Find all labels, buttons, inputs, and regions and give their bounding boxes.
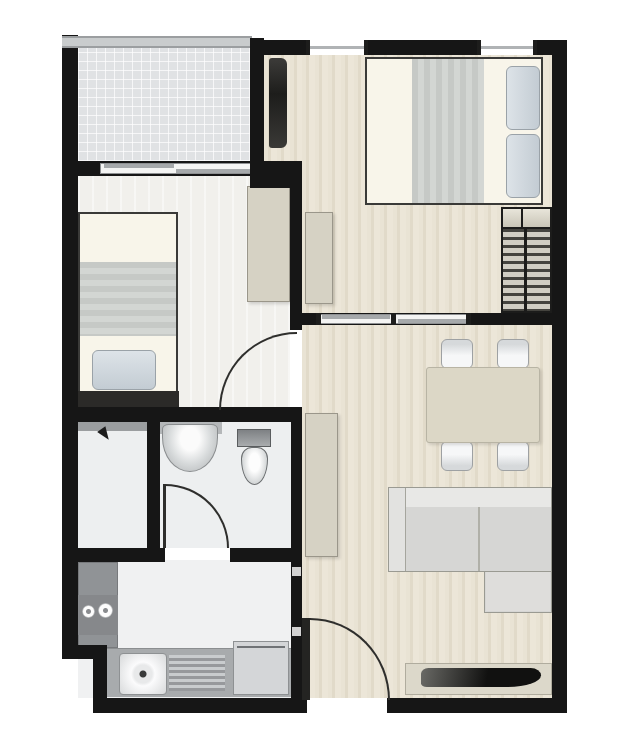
floor-plan	[0, 0, 640, 741]
sofa-chaise-cushion	[486, 572, 550, 611]
notch-wall-vertical	[93, 645, 107, 713]
window-1-tick-right	[364, 40, 368, 55]
double-bed-blanket	[412, 59, 484, 203]
wardrobe-hanging-left	[503, 229, 524, 311]
bedroom1-sliding-panel-2	[398, 319, 466, 323]
window-2-glass	[481, 46, 533, 49]
sofa-backrest	[389, 488, 551, 507]
dining-table	[426, 367, 540, 443]
burner-icon-2	[98, 603, 113, 618]
wardrobe-bedroom2	[247, 186, 290, 302]
bedroom1-sliding-panel-1	[322, 315, 390, 319]
dining-chair-3	[441, 441, 473, 471]
bedroom1-sliding-post-mid	[391, 313, 396, 325]
bed1-pillow-bottom	[506, 134, 540, 198]
bedroom2-right-wall	[290, 185, 302, 330]
bedroom1-sliding-post-right	[466, 313, 471, 325]
balcony-right-wall	[250, 38, 264, 161]
window-1-tick-left	[306, 40, 310, 55]
divider-post-mark-2	[292, 627, 301, 636]
wardrobe-shelf-box-2	[523, 209, 550, 229]
dresser-bedroom1	[305, 212, 333, 304]
sofa-seat-seam	[478, 507, 480, 571]
wardrobe-bedroom1	[501, 207, 552, 313]
sofa-armrest	[389, 488, 406, 571]
balcony-railing	[62, 36, 252, 48]
burner-icon-1	[82, 605, 95, 618]
refrigerator-handle	[237, 646, 285, 648]
dining-chair-1	[441, 339, 473, 369]
single-bed-blanket	[80, 262, 176, 336]
wardrobe-hanging-right	[527, 229, 550, 311]
dining-chair-2	[497, 339, 529, 369]
kitchen-living-divider	[291, 422, 302, 698]
kitchen-sink	[119, 653, 167, 695]
wall-tv-bedroom1	[269, 58, 287, 148]
bed2-pillow	[92, 350, 156, 390]
drainboard	[169, 655, 225, 691]
window-2-tick-left	[477, 40, 481, 55]
bed1-pillow-top	[506, 66, 540, 130]
living-tv	[421, 668, 541, 687]
toilet-tank	[237, 429, 271, 447]
bottom-wall-left	[93, 698, 307, 713]
divider-post-mark-1	[292, 567, 301, 576]
bathroom-bottom-wall-left	[62, 548, 165, 562]
dining-chair-4	[497, 441, 529, 471]
balcony-sliding-panel-1	[104, 164, 174, 168]
balcony-left-wall	[62, 35, 78, 175]
bottom-wall-right	[387, 698, 567, 713]
refrigerator	[233, 641, 289, 695]
right-outer-wall	[552, 40, 567, 713]
entrance-door-leaf	[302, 618, 310, 700]
wardrobe-shelf-box-1	[503, 209, 523, 229]
bed2-footboard	[75, 391, 179, 407]
balcony-floor	[78, 48, 250, 161]
shower-bathroom-divider	[147, 415, 160, 555]
window-1-glass	[310, 46, 364, 49]
console-cabinet	[305, 413, 338, 557]
balcony-sliding-panel-2	[176, 169, 250, 173]
shower-floor	[78, 420, 147, 548]
bedroom1-jog-wall	[250, 161, 302, 188]
bedroom1-sliding-post-left	[316, 313, 321, 325]
window-2-tick-right	[533, 40, 537, 55]
